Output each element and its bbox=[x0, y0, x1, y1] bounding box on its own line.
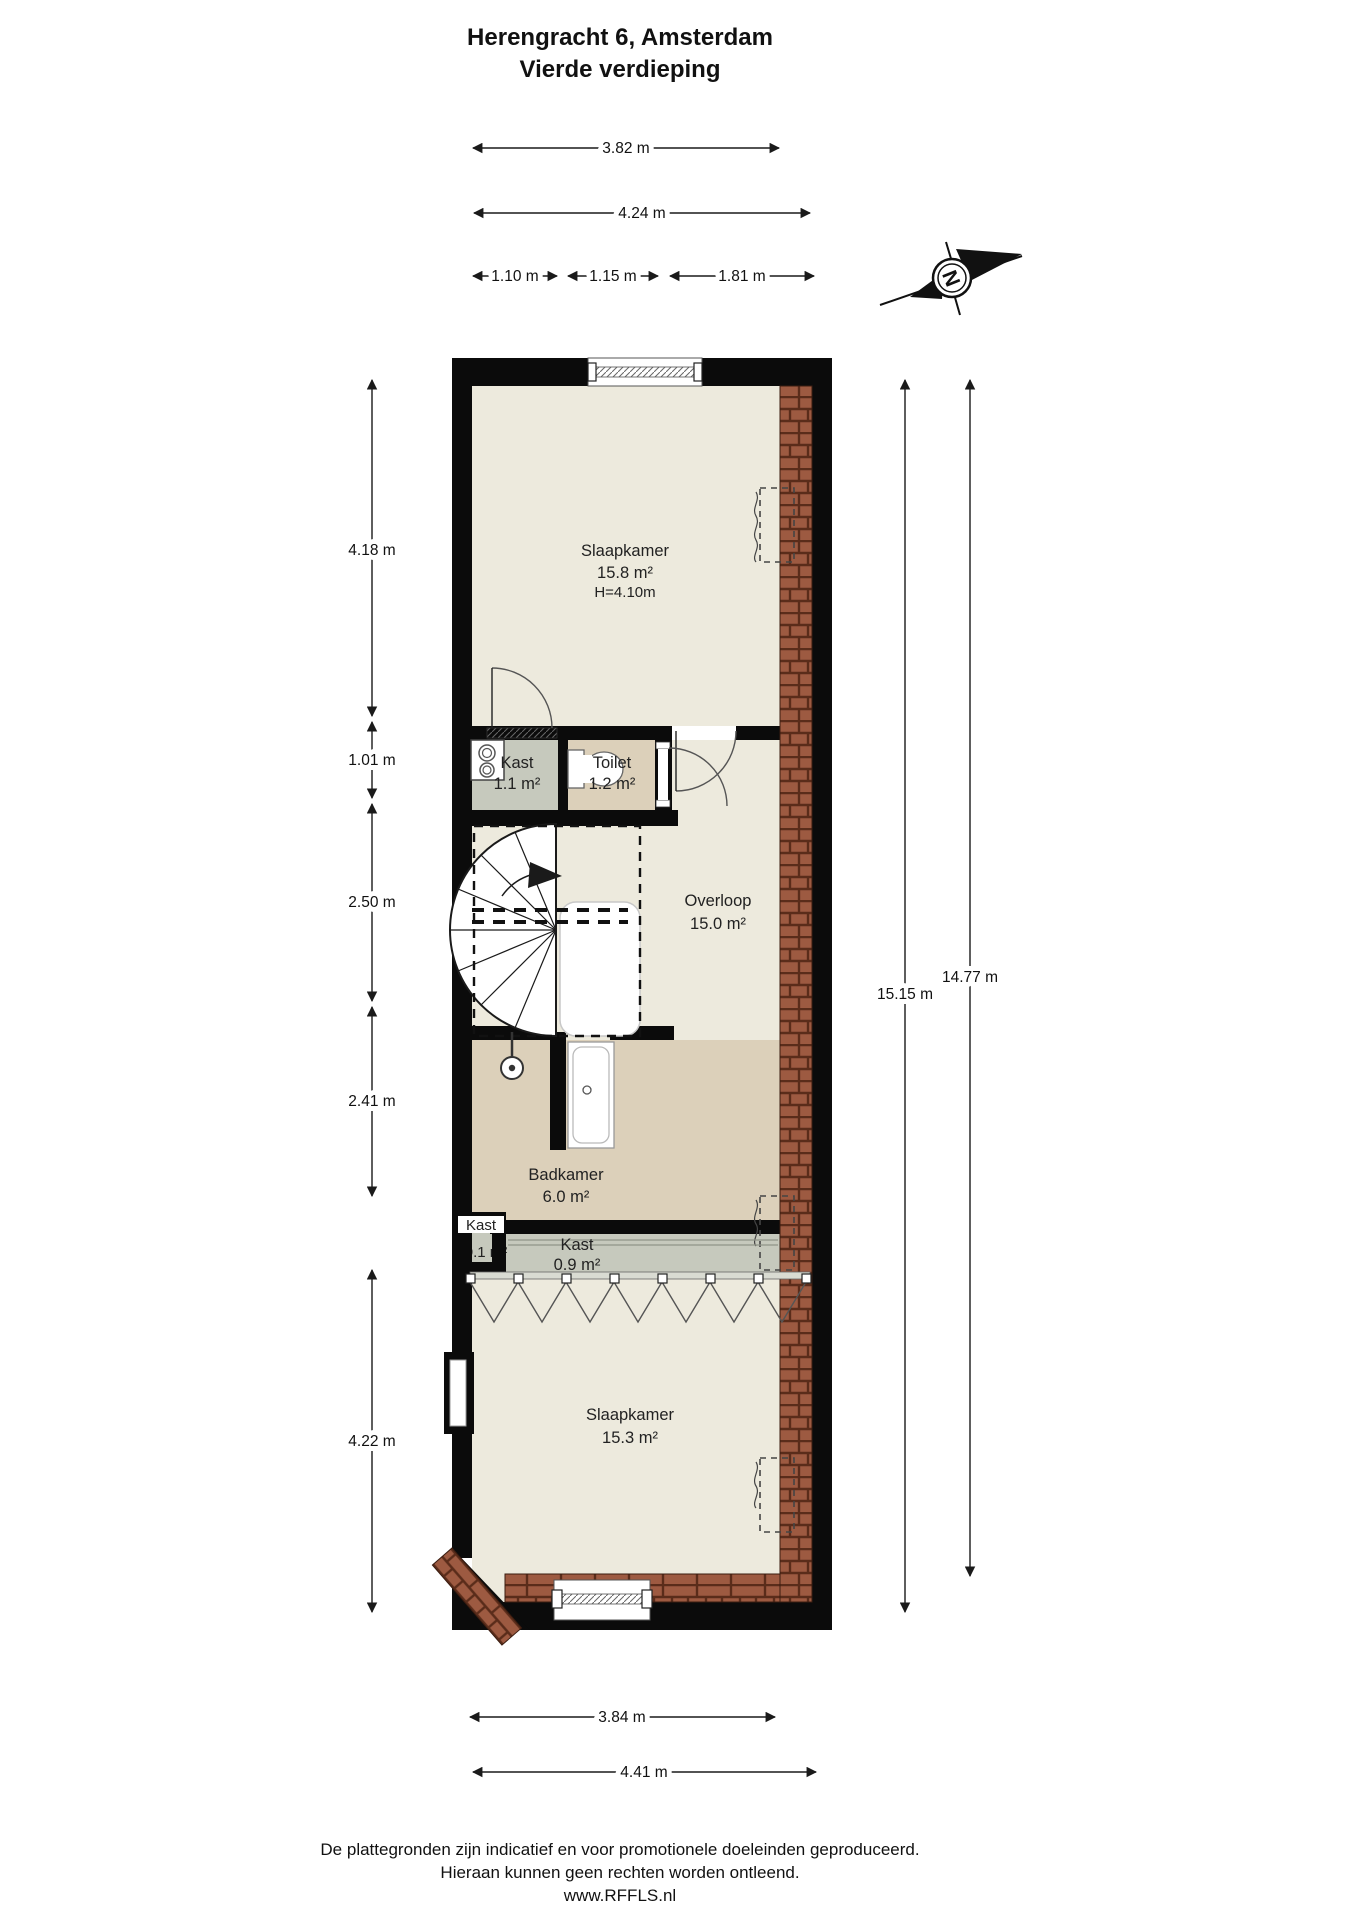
washing-machine-icon bbox=[471, 740, 504, 780]
room-name-toilet: Toilet bbox=[593, 754, 632, 772]
dimension-label-top-1: 3.82 m bbox=[602, 140, 649, 157]
room-name-slaapkamer-onder: Slaapkamer bbox=[586, 1406, 675, 1424]
north-compass-icon: N bbox=[880, 242, 1022, 315]
window-top bbox=[588, 358, 702, 386]
floor-plan: 0.1 m² bbox=[0, 0, 1358, 1920]
room-area-slaapkamer-top: 15.8 m² bbox=[597, 564, 653, 582]
dimension-label-top-5: 1.81 m bbox=[718, 268, 765, 285]
dimension-label-right-2: 14.77 m bbox=[942, 969, 998, 986]
dimension-label-top-2: 4.24 m bbox=[618, 205, 665, 222]
dimension-label-top-3: 1.10 m bbox=[491, 268, 538, 285]
room-name-kast-klein: Kast bbox=[466, 1217, 497, 1234]
website-url: www.RFFLS.nl bbox=[0, 1884, 1240, 1907]
dimension-label-left-5: 4.22 m bbox=[348, 1433, 395, 1450]
window-bottom bbox=[552, 1580, 652, 1620]
disclaimer-line-2: Hieraan kunnen geen rechten worden ontle… bbox=[0, 1861, 1240, 1884]
room-name-badkamer: Badkamer bbox=[528, 1166, 604, 1184]
room-name-slaapkamer-top: Slaapkamer bbox=[581, 542, 670, 560]
dimension-label-right-1: 15.15 m bbox=[877, 986, 933, 1003]
room-name-kast-wasmachine: Kast bbox=[500, 754, 533, 772]
room-area-toilet: 1.2 m² bbox=[589, 775, 636, 793]
dimension-label-left-2: 1.01 m bbox=[348, 752, 395, 769]
bathtub-icon bbox=[568, 1042, 614, 1148]
room-label-kast-klein: Kast bbox=[458, 1216, 504, 1234]
room-ceiling-slaapkamer-top: H=4.10m bbox=[594, 584, 655, 601]
disclaimer-line-1: De plattegronden zijn indicatief en voor… bbox=[0, 1838, 1240, 1861]
dimension-label-bottom-2: 4.41 m bbox=[620, 1764, 667, 1781]
left-wall-door bbox=[444, 1352, 474, 1434]
dimension-label-left-1: 4.18 m bbox=[348, 542, 395, 559]
dimension-label-top-4: 1.15 m bbox=[589, 268, 636, 285]
room-area-overloop: 15.0 m² bbox=[690, 915, 746, 933]
room-area-slaapkamer-onder: 15.3 m² bbox=[602, 1429, 658, 1447]
room-name-kast-breed: Kast bbox=[560, 1236, 593, 1254]
room-name-overloop: Overloop bbox=[685, 892, 752, 910]
dimension-label-bottom-1: 3.84 m bbox=[598, 1709, 645, 1726]
room-area-badkamer: 6.0 m² bbox=[543, 1188, 590, 1206]
room-area-kast-breed: 0.9 m² bbox=[554, 1256, 601, 1274]
dimension-label-left-4: 2.41 m bbox=[348, 1093, 395, 1110]
dimension-label-left-3: 2.50 m bbox=[348, 894, 395, 911]
room-area-kast-wasmachine: 1.1 m² bbox=[494, 775, 541, 793]
disclaimer: De plattegronden zijn indicatief en voor… bbox=[0, 1838, 1240, 1907]
